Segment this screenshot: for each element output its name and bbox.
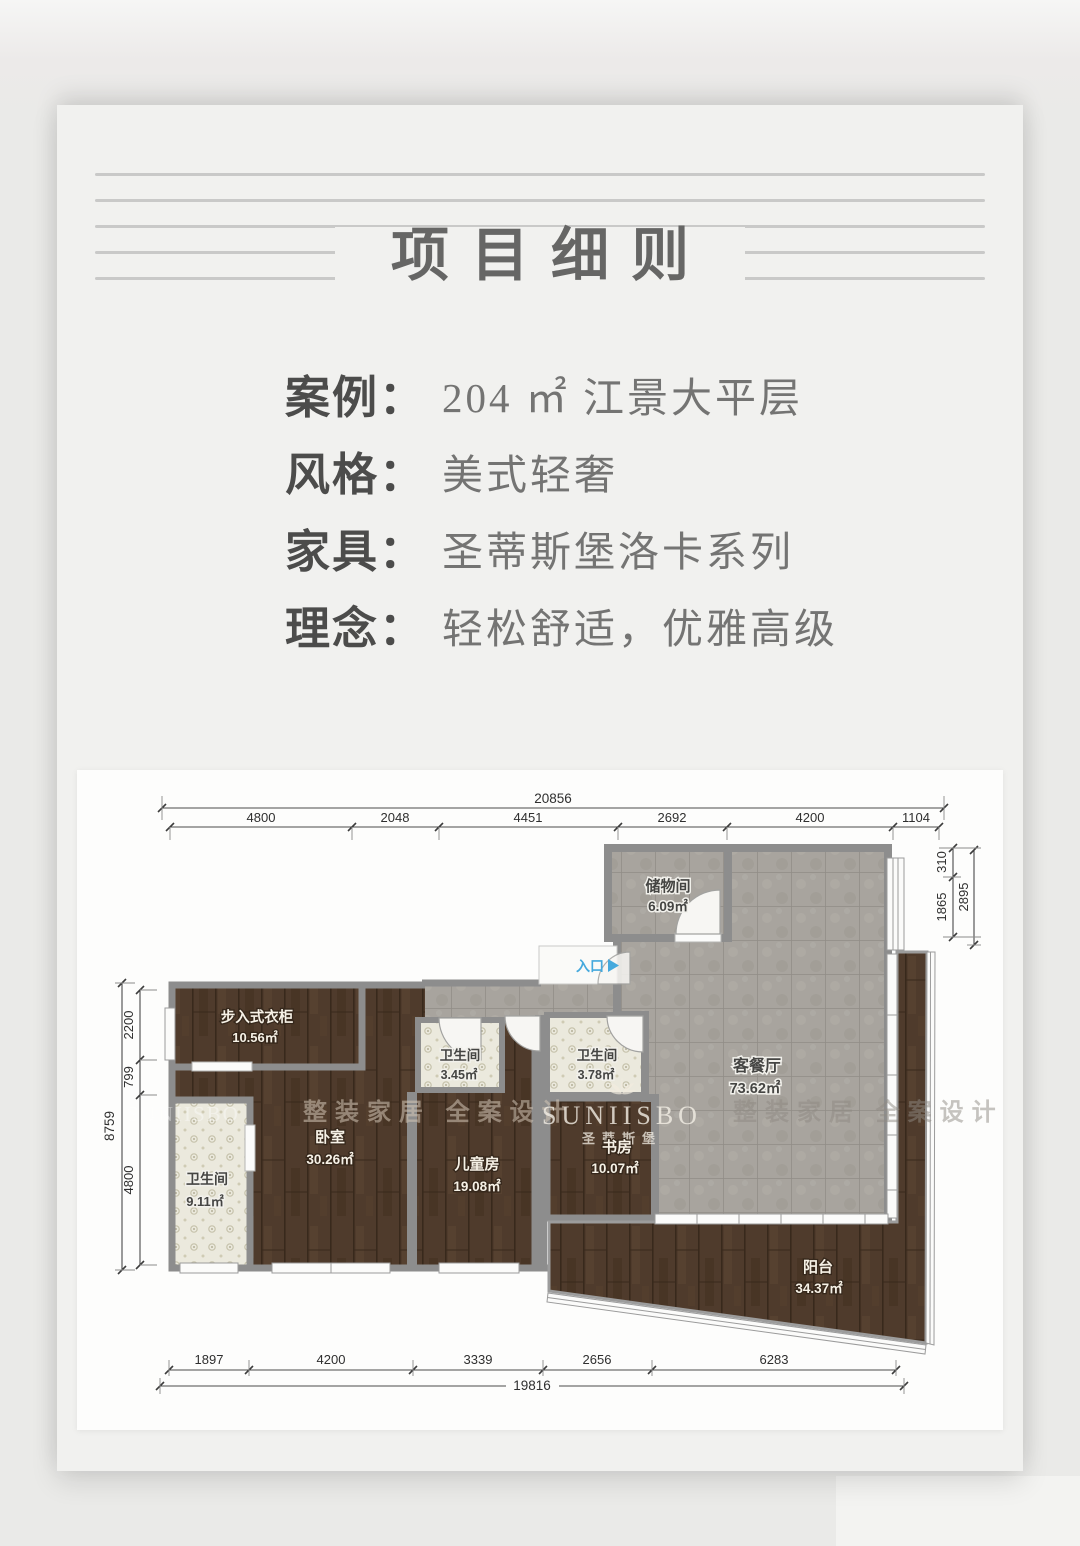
background-patch <box>836 1476 1080 1546</box>
dim-bottom-seg: 2656 <box>583 1352 612 1367</box>
info-label: 案例： <box>285 361 426 426</box>
info-label: 家具： <box>285 515 426 580</box>
entrance-label: 入口 <box>576 958 604 974</box>
room-label-living: 客餐厅 <box>733 1056 781 1075</box>
info-label: 风格： <box>285 438 426 503</box>
dim-bottom-total: 19816 <box>513 1378 551 1393</box>
dim-bottom-seg: 6283 <box>760 1352 789 1367</box>
page-card: 项目细则 案例： 204 ㎡ 江景大平层 风格： 美式轻奢 家具： 圣蒂斯堡洛卡… <box>57 105 1023 1471</box>
info-row-concept: 理念： 轻松舒适，优雅高级 <box>285 586 838 663</box>
dim-top-seg: 1104 <box>902 810 930 825</box>
info-row-style: 风格： 美式轻奢 <box>285 432 838 509</box>
dim-bottom-seg: 4200 <box>317 1352 346 1367</box>
info-label: 理念： <box>285 592 426 657</box>
title-section: 项目细则 <box>95 173 985 285</box>
room-label-bathroom-2: 卫生间 <box>440 1047 481 1063</box>
room-area-bathroom-3: 3.78㎡ <box>578 1067 615 1082</box>
title-rule <box>95 199 985 202</box>
dim-top-seg: 4451 <box>514 810 543 825</box>
dim-right-total: 2895 <box>956 883 971 912</box>
title-rule <box>95 173 985 176</box>
room-area-bathroom-1: 9.11㎡ <box>186 1194 224 1209</box>
info-value: 圣蒂斯堡洛卡系列 <box>442 518 794 578</box>
room-area-living: 73.62㎡ <box>730 1079 781 1097</box>
dim-top-seg: 2692 <box>658 810 687 825</box>
watermark-slogan-right: 整装家居 全案设计 <box>733 1098 1003 1126</box>
room-area-closet: 10.56㎡ <box>232 1030 278 1045</box>
info-row-furniture: 家具： 圣蒂斯堡洛卡系列 <box>285 509 838 586</box>
room-label-storage: 储物间 <box>645 877 690 895</box>
room-area-storage: 6.09㎡ <box>648 898 688 914</box>
info-row-case: 案例： 204 ㎡ 江景大平层 <box>285 355 838 432</box>
dim-top-seg: 4800 <box>247 810 276 825</box>
room-area-study: 10.07㎡ <box>591 1160 639 1176</box>
room-label-bathroom-3: 卫生间 <box>577 1047 618 1063</box>
dim-left-seg: 2200 <box>121 1011 136 1040</box>
dim-bottom-seg: 1897 <box>195 1352 224 1367</box>
floorplan-panel: 入口 SUNIISBO 整装家居 全案设计 整装家居 全案设计 SUNIISBO… <box>77 770 1003 1430</box>
watermark-brand-left: SUNIISBO <box>127 1102 240 1126</box>
dim-bottom-seg: 3339 <box>464 1352 493 1367</box>
floor-plan: 入口 SUNIISBO 整装家居 全案设计 整装家居 全案设计 SUNIISBO… <box>77 770 1003 1430</box>
room-area-bedroom: 30.26㎡ <box>306 1151 354 1167</box>
room-label-study: 书房 <box>602 1138 632 1156</box>
dim-right-seg: 310 <box>934 851 949 873</box>
room-area-children: 19.08㎡ <box>453 1178 501 1194</box>
page-title: 项目细则 <box>335 227 745 285</box>
watermark-slogan-left: 整装家居 全案设计 <box>303 1098 574 1126</box>
room-area-bathroom-2: 3.45㎡ <box>441 1067 478 1082</box>
room-label-balcony: 阳台 <box>803 1258 833 1276</box>
dim-left-seg: 4800 <box>121 1166 136 1195</box>
watermark-brand-center: SUNIISBO <box>542 1101 702 1130</box>
room-label-closet: 步入式衣柜 <box>221 1008 294 1026</box>
dim-top-seg: 2048 <box>381 810 410 825</box>
room-label-bedroom: 卧室 <box>315 1128 345 1146</box>
info-value: 轻松舒适，优雅高级 <box>442 595 838 655</box>
room-label-children: 儿童房 <box>453 1155 499 1173</box>
dim-left-total: 8759 <box>102 1111 117 1141</box>
dim-top-total: 20856 <box>534 791 572 806</box>
room-area-balcony: 34.37㎡ <box>795 1280 843 1296</box>
dim-right-seg: 1865 <box>934 893 949 922</box>
info-value: 204 ㎡ 江景大平层 <box>442 364 803 424</box>
dim-left-seg: 799 <box>121 1066 136 1088</box>
room-label-bathroom-1: 卫生间 <box>186 1171 228 1187</box>
dim-top-seg: 4200 <box>796 810 825 825</box>
info-value: 美式轻奢 <box>442 441 618 501</box>
info-section: 案例： 204 ㎡ 江景大平层 风格： 美式轻奢 家具： 圣蒂斯堡洛卡系列 理念… <box>285 355 838 663</box>
